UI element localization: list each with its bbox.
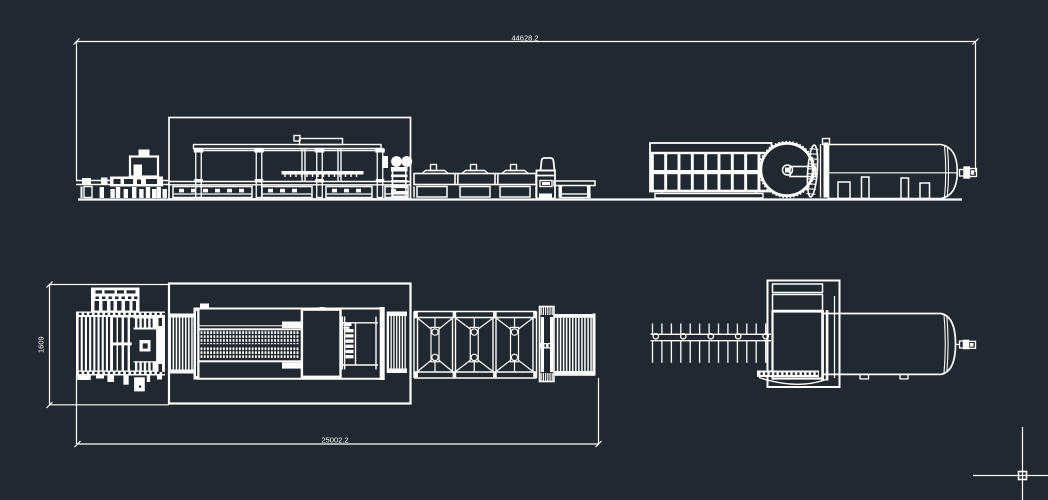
svg-text:44628.2: 44628.2 (511, 34, 538, 43)
svg-text:25002.2: 25002.2 (321, 436, 348, 445)
svg-text:1609: 1609 (37, 336, 46, 353)
